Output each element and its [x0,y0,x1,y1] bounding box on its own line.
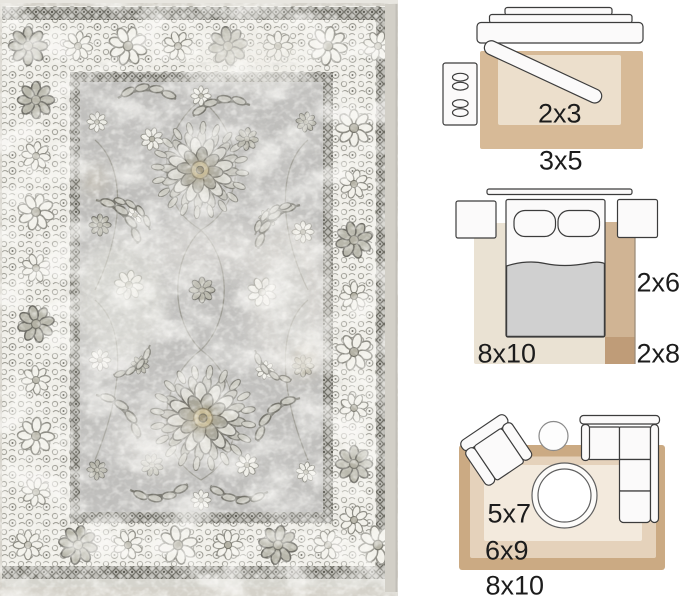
svg-text:5x7: 5x7 [488,499,532,529]
svg-text:8x10: 8x10 [478,338,537,368]
svg-text:2x6: 2x6 [637,268,679,298]
svg-text:8x10: 8x10 [486,571,545,597]
svg-text:2x3: 2x3 [538,99,582,129]
svg-text:2x8: 2x8 [637,338,679,368]
svg-text:3x5: 3x5 [539,146,583,176]
svg-text:6x9: 6x9 [485,536,529,566]
